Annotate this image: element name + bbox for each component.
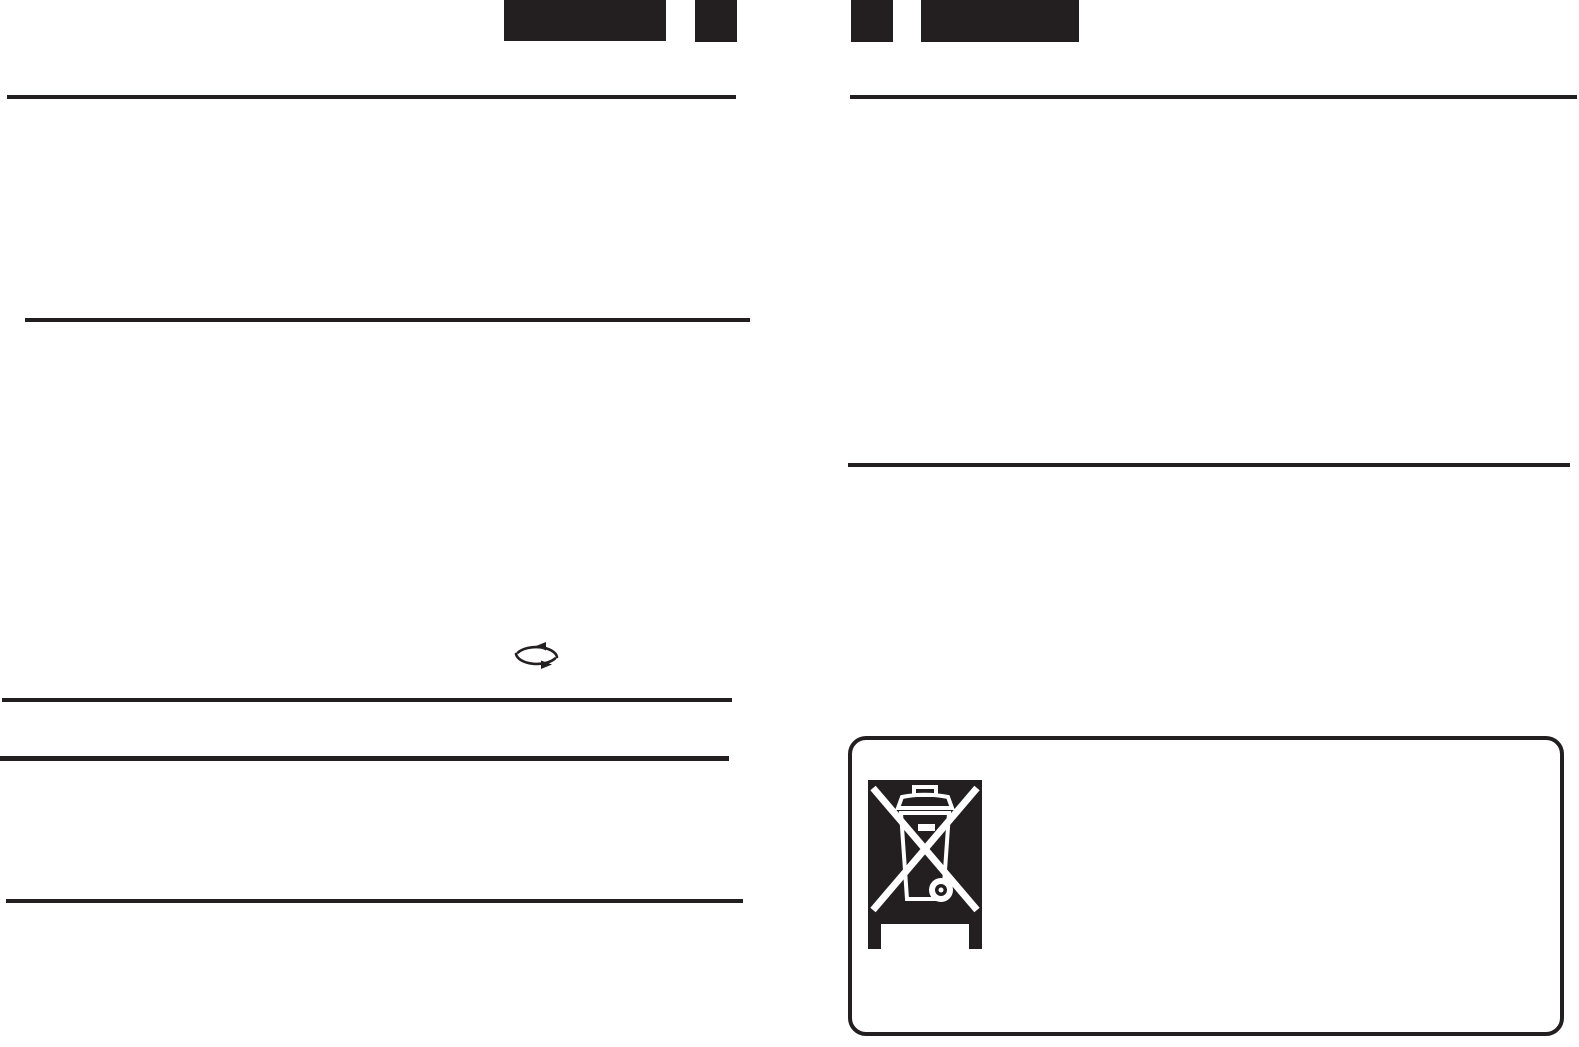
recycle-arrows-icon [512,641,560,670]
left-column-rule-3 [2,698,732,702]
redacted-header-block-4 [921,0,1079,42]
left-column-rule-2 [25,318,750,322]
left-column-rule-1 [7,95,736,99]
weee-crossed-bin-icon [868,780,982,950]
left-column-rule-5 [6,899,743,903]
right-column-rule-2 [848,463,1570,467]
weee-notice-box [848,736,1564,1036]
right-column-rule-1 [850,95,1577,99]
left-column-rule-4 [0,756,729,761]
redacted-header-block-2 [695,0,737,42]
redacted-header-block-1 [504,0,666,41]
manual-page [0,0,1579,1047]
redacted-header-block-3 [851,0,893,42]
